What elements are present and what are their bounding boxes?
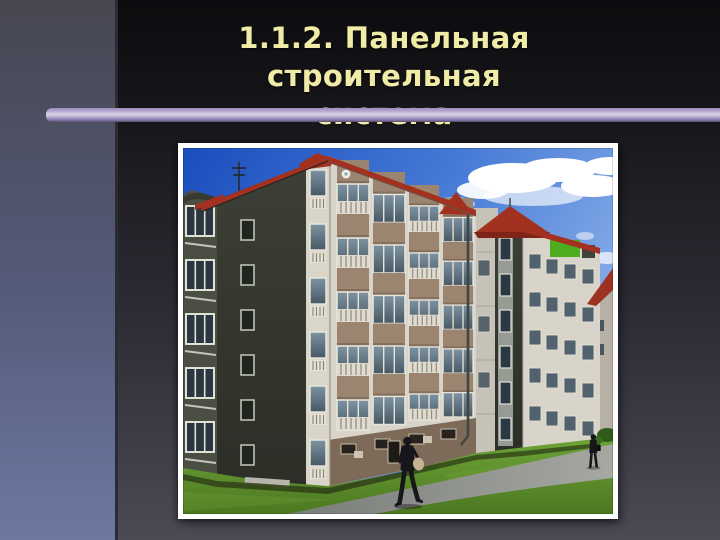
left-balcony-bays <box>183 190 217 484</box>
left-accent-band <box>0 0 118 540</box>
divider-line <box>46 108 720 122</box>
photo-frame: Five-storey prefabricated panel apartmen… <box>178 143 618 519</box>
corner-bay-windows <box>306 157 330 492</box>
right-building-section <box>495 220 600 458</box>
building-photo-image: Five-storey prefabricated panel apartmen… <box>183 148 613 514</box>
entrance-door <box>388 441 400 463</box>
slide-title-line1: 1.1.2. Панельная строительная <box>118 19 650 95</box>
recessed-section <box>474 208 498 456</box>
